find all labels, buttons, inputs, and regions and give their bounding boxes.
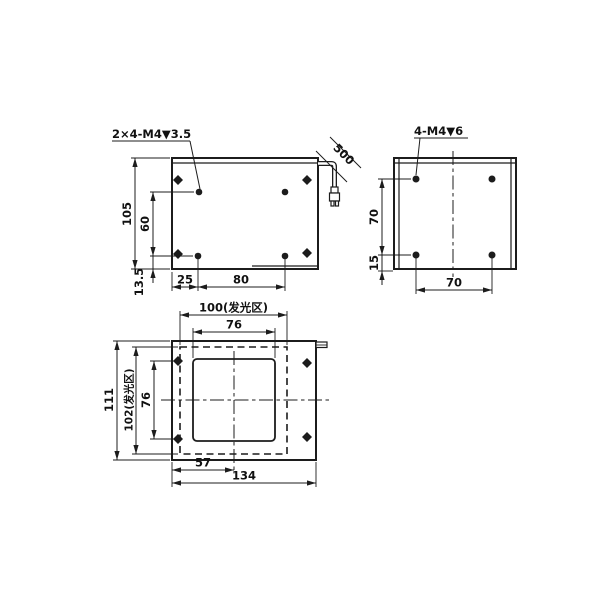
canvas-background bbox=[0, 0, 600, 600]
drawing-page: 2×4-M4▼3.5 500 105 60 13.5 25 80 bbox=[0, 0, 600, 600]
connector-pin bbox=[331, 201, 334, 206]
thread-callout-label: 2×4-M4▼3.5 bbox=[112, 127, 191, 141]
thread-callout-label: 4-M4▼6 bbox=[414, 124, 463, 138]
dim-edge-offset: 13.5 bbox=[132, 268, 146, 296]
dim-emitting-height: 102(发光区) bbox=[123, 368, 136, 431]
tapped-hole bbox=[413, 252, 420, 259]
dim-overall-height: 105 bbox=[120, 202, 134, 226]
tapped-hole bbox=[195, 253, 202, 260]
dim-overall-width: 134 bbox=[232, 469, 256, 483]
dim-emitting-width: 100(发光区) bbox=[199, 301, 268, 315]
dim-center-offset: 57 bbox=[195, 456, 211, 470]
dim-hole-spacing-h: 80 bbox=[233, 273, 249, 287]
tapped-hole bbox=[196, 189, 203, 196]
dim-hole-offset-left: 25 bbox=[177, 273, 193, 287]
dim-edge-offset: 15 bbox=[367, 255, 381, 271]
engineering-drawing: 2×4-M4▼3.5 500 105 60 13.5 25 80 bbox=[0, 0, 600, 600]
connector-neck bbox=[331, 187, 338, 193]
connector-pin bbox=[336, 201, 339, 206]
connector-body bbox=[330, 193, 340, 201]
dim-window-width: 76 bbox=[226, 318, 242, 332]
tapped-hole bbox=[282, 253, 289, 260]
dim-overall-height: 111 bbox=[102, 388, 116, 412]
dim-hole-spacing-h: 70 bbox=[446, 276, 462, 290]
tapped-hole bbox=[413, 176, 420, 183]
tapped-hole bbox=[489, 252, 496, 259]
dim-hole-spacing-v: 76 bbox=[139, 392, 153, 408]
dim-hole-spacing-v: 70 bbox=[367, 209, 381, 225]
tapped-hole bbox=[282, 189, 289, 196]
tapped-hole bbox=[489, 176, 496, 183]
dim-hole-spacing-v: 60 bbox=[138, 216, 152, 232]
